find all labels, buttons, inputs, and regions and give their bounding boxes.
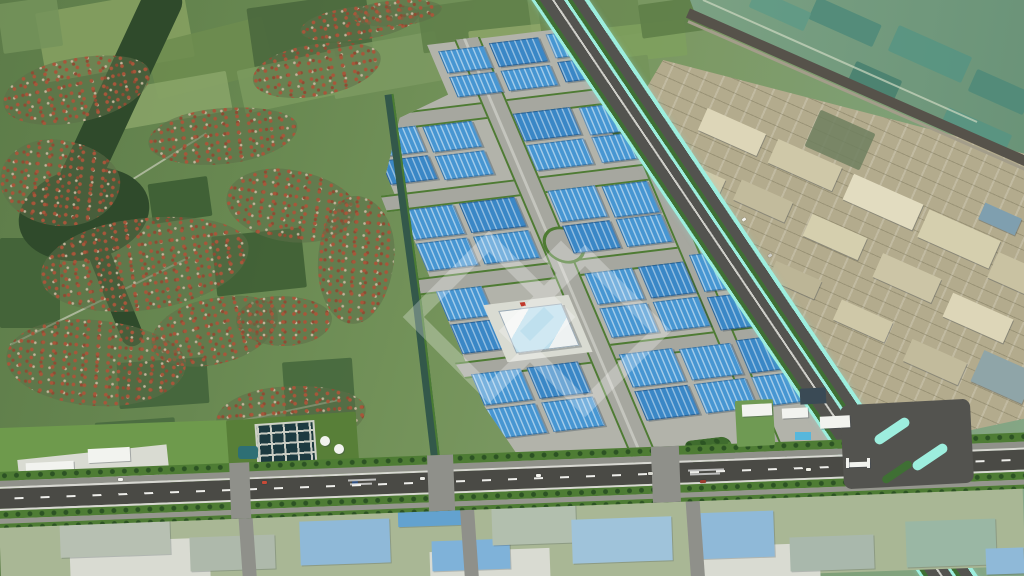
watermark-logo: [428, 240, 638, 390]
road-name-marking: [348, 479, 376, 482]
road-name-marking: [690, 472, 720, 475]
road-name-marking: [688, 468, 724, 471]
road-name-marking: [350, 483, 372, 486]
aerial-masterplan-render: [0, 0, 1024, 576]
